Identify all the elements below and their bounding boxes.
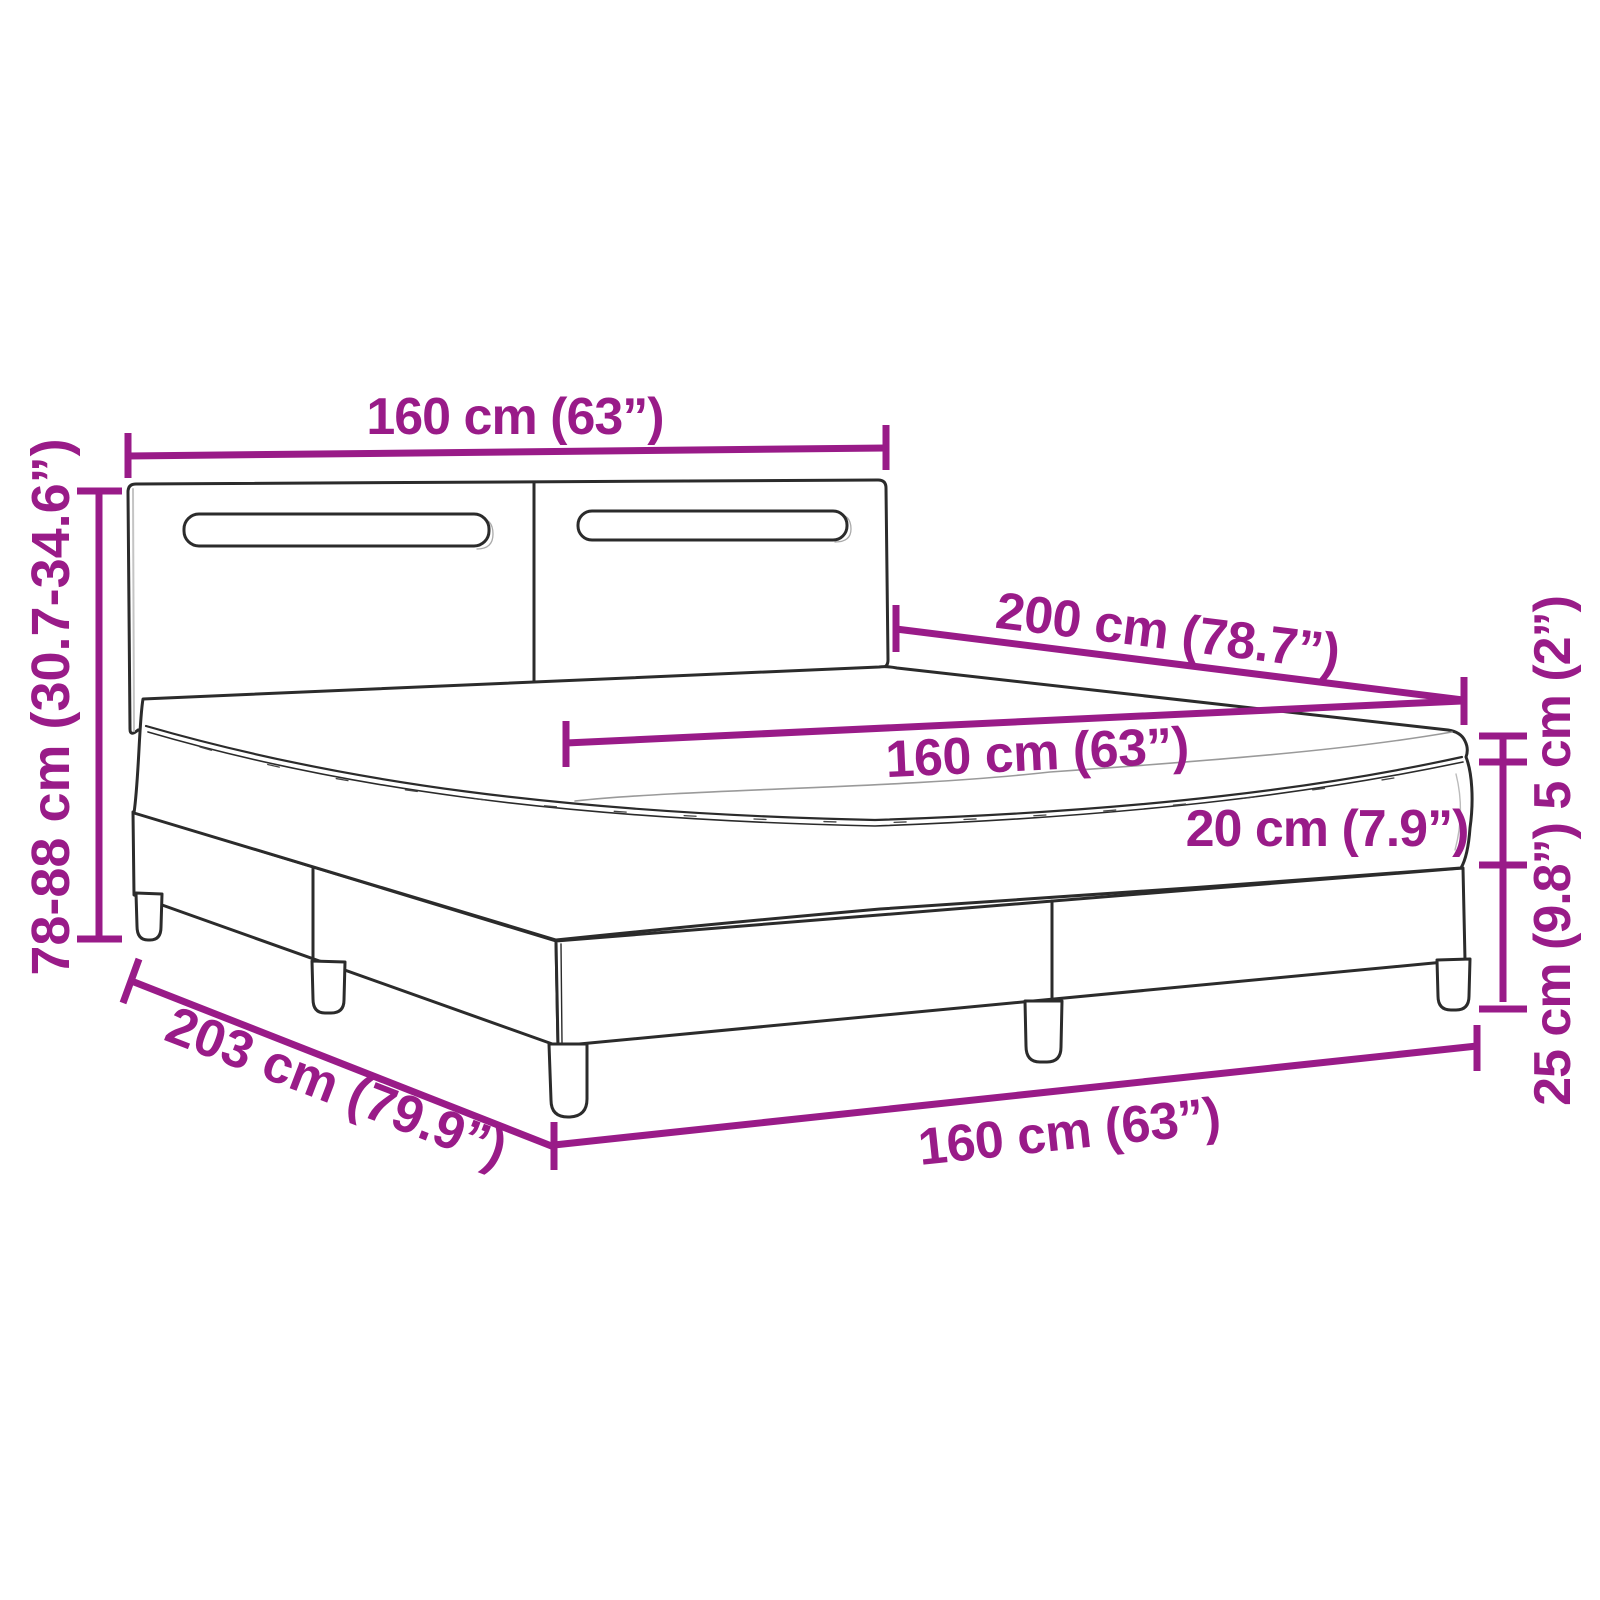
svg-text:160 cm (63”): 160 cm (63”) <box>366 388 663 446</box>
svg-text:25 cm (9.8”) 5 cm (2”): 25 cm (9.8”) 5 cm (2”) <box>1524 596 1582 1106</box>
svg-text:78-88 cm (30.7-34.6”): 78-88 cm (30.7-34.6”) <box>21 438 81 975</box>
svg-text:20 cm (7.9”): 20 cm (7.9”) <box>1186 800 1469 858</box>
